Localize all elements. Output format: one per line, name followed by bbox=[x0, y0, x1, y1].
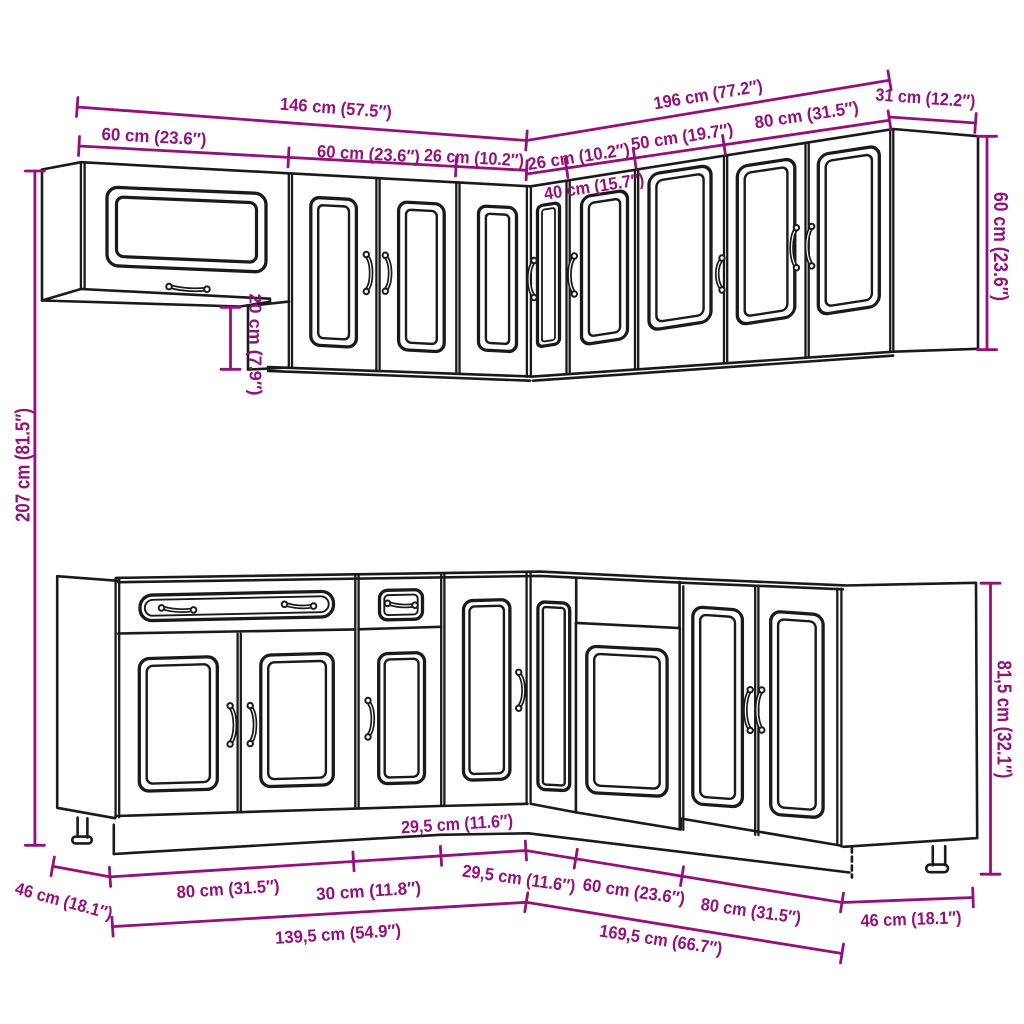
svg-text:60 cm (23.6″): 60 cm (23.6″) bbox=[989, 192, 1012, 301]
svg-text:46 cm (18.1″): 46 cm (18.1″) bbox=[860, 907, 962, 931]
svg-text:207 cm (81.5″): 207 cm (81.5″) bbox=[11, 408, 34, 522]
svg-text:20 cm (7.9″): 20 cm (7.9″) bbox=[246, 294, 266, 396]
svg-text:81,5 cm (32.1″): 81,5 cm (32.1″) bbox=[993, 661, 1016, 779]
